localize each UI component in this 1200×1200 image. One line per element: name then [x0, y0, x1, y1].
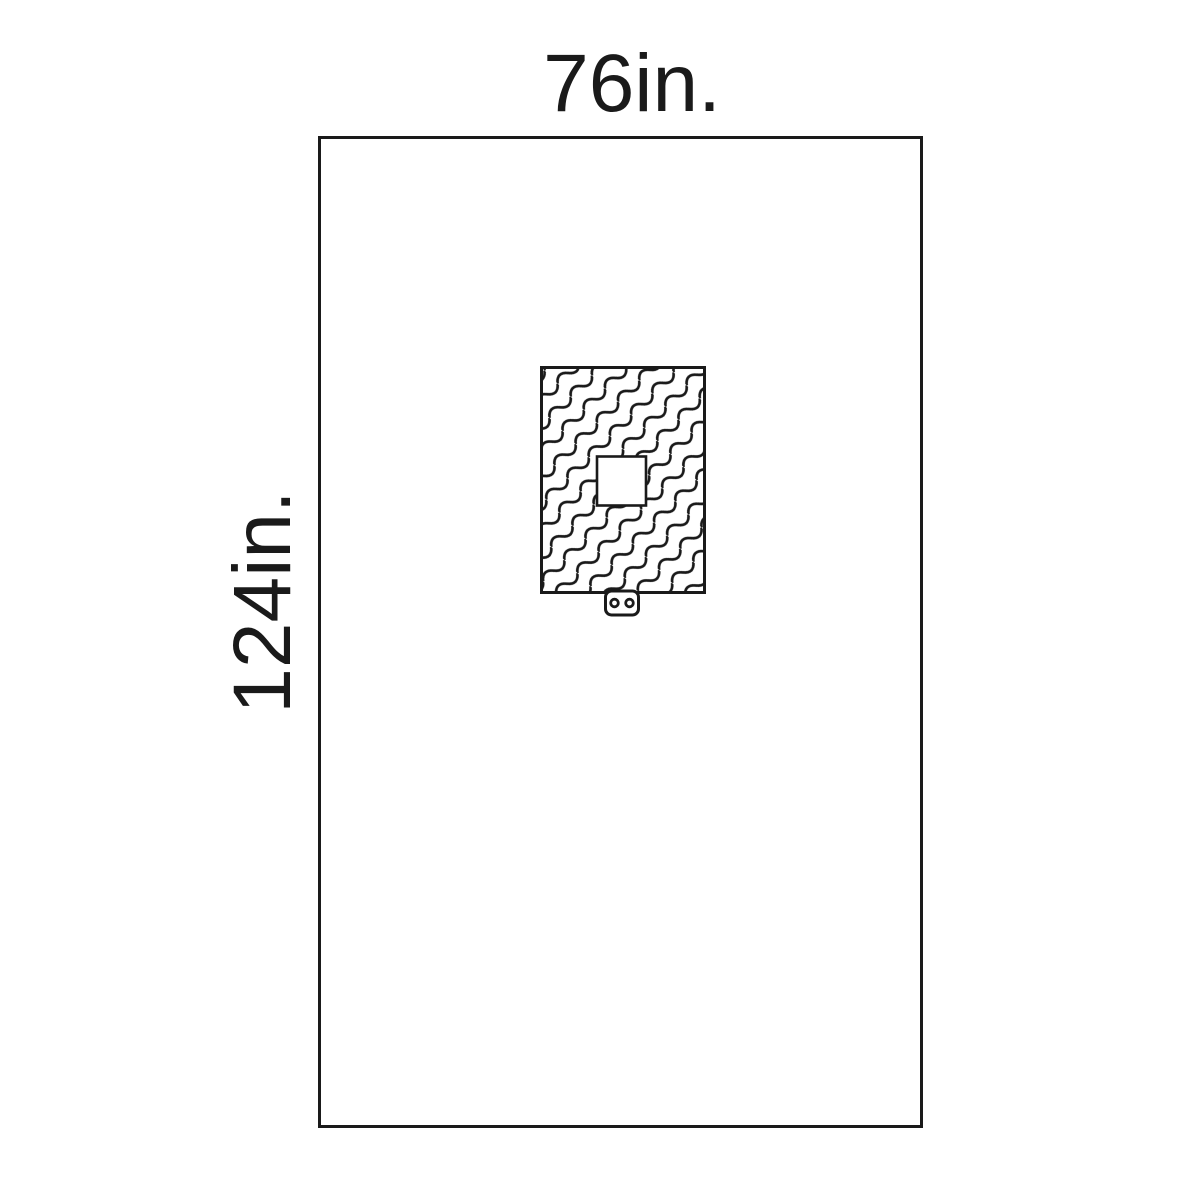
reinforcement-patch: [538, 364, 708, 622]
drape-outline: [318, 136, 923, 1128]
height-dimension-label: 124in.: [222, 490, 304, 713]
tab-hole-left: [611, 599, 619, 607]
width-dimension-label: 76in.: [543, 43, 721, 125]
fenestration-square: [597, 457, 646, 506]
tab-hole-right: [626, 599, 634, 607]
drape-diagram: 76in. 124in.: [0, 0, 1200, 1200]
